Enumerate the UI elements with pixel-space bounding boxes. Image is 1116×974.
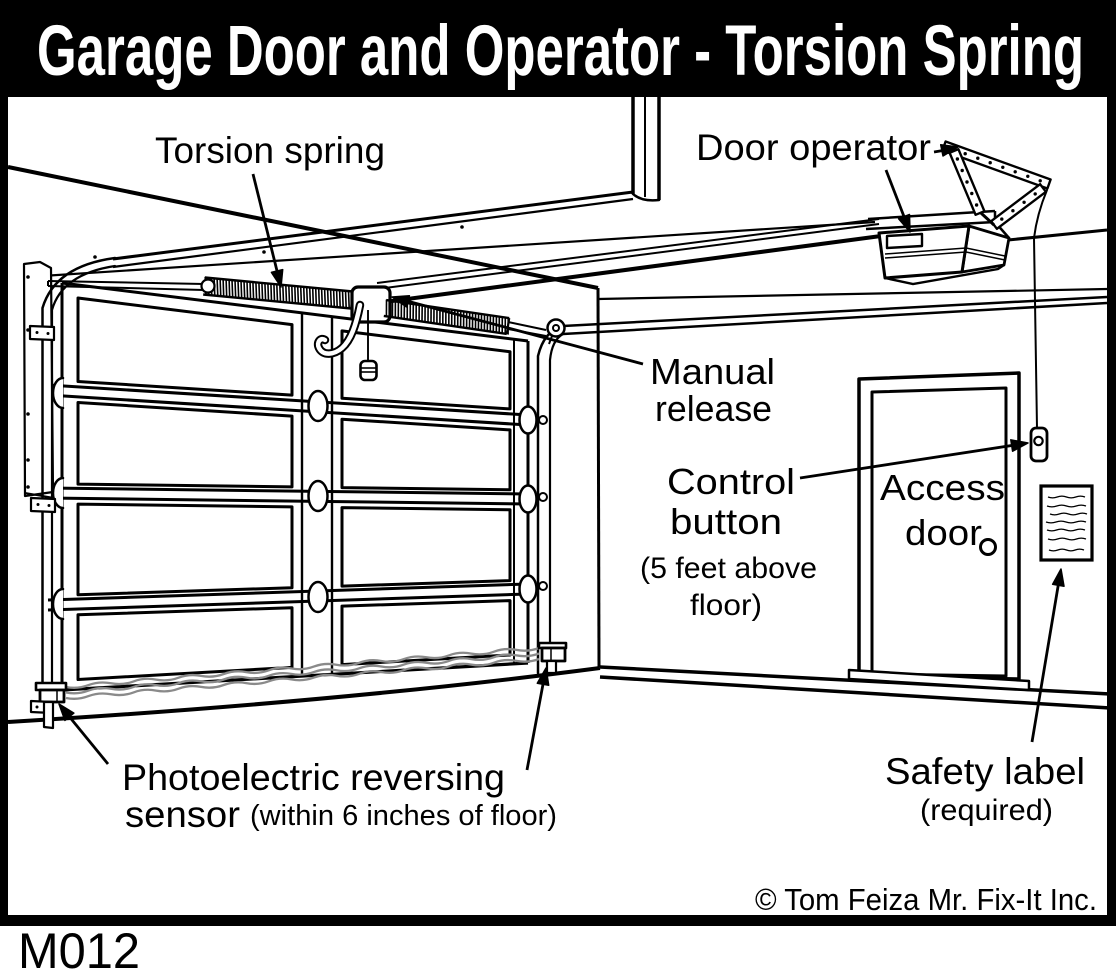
svg-text:(5 feet above: (5 feet above xyxy=(640,552,817,585)
svg-text:floor): floor) xyxy=(690,589,762,622)
svg-text:Photoelectric reversing: Photoelectric reversing xyxy=(122,757,505,798)
svg-text:Torsion spring: Torsion spring xyxy=(155,130,385,171)
svg-text:© Tom Feiza Mr. Fix-It Inc.: © Tom Feiza Mr. Fix-It Inc. xyxy=(755,882,1097,917)
svg-text:button: button xyxy=(670,501,782,542)
svg-text:M012: M012 xyxy=(18,923,140,974)
svg-text:sensor: sensor xyxy=(125,794,240,835)
svg-text:(within 6 inches of floor): (within 6 inches of floor) xyxy=(250,800,557,832)
svg-text:release: release xyxy=(655,388,772,429)
svg-text:Safety label: Safety label xyxy=(885,751,1085,792)
svg-text:(required): (required) xyxy=(920,794,1053,827)
svg-text:door: door xyxy=(905,512,982,553)
svg-text:Control: Control xyxy=(667,461,795,502)
svg-text:Garage Door and Operator - Tor: Garage Door and Operator - Torsion Sprin… xyxy=(37,12,1084,91)
svg-text:Access: Access xyxy=(880,467,1005,508)
svg-text:Manual: Manual xyxy=(650,351,775,392)
svg-text:Door operator: Door operator xyxy=(696,127,931,168)
